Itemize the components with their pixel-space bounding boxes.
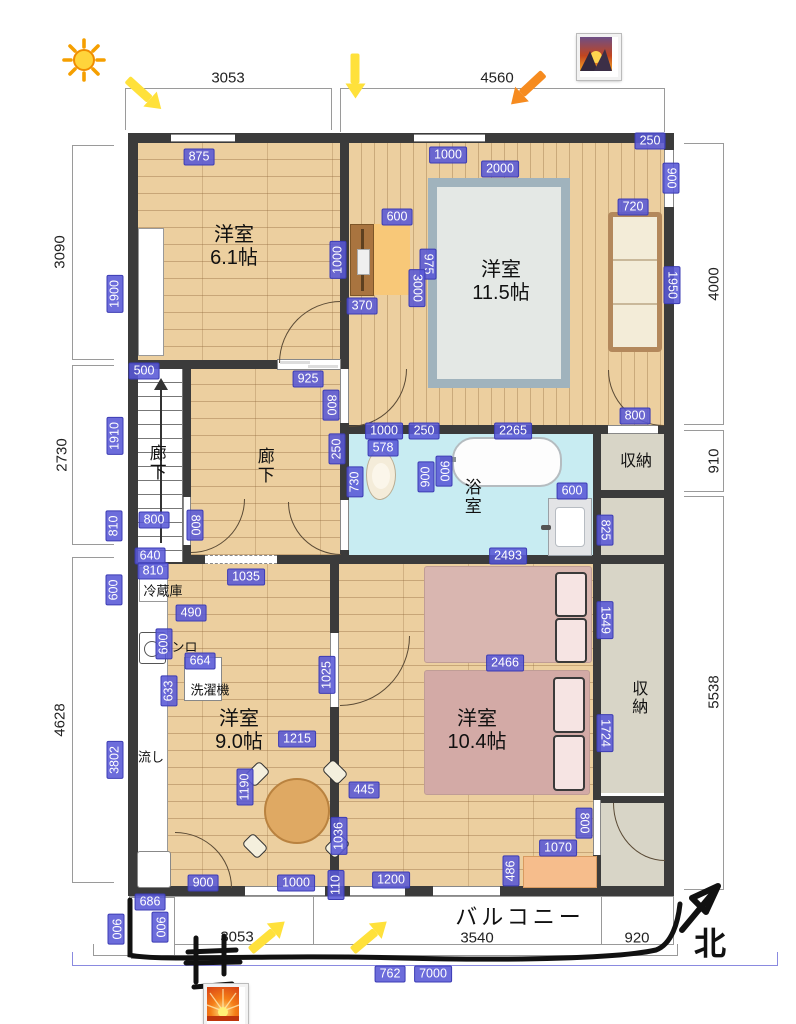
dimension-badge-1000: 1000 [365, 423, 403, 440]
dim-bracket-left-3090 [72, 145, 114, 360]
dimension-badge-1000: 1000 [330, 241, 347, 279]
dimension-badge-2493: 2493 [489, 548, 527, 565]
dimension-badge-720: 720 [618, 199, 649, 216]
door-gap-entry [593, 800, 601, 855]
dimension-badge-2466: 2466 [486, 655, 524, 672]
sofa [608, 212, 662, 352]
sunrise-photo-icon-bottom [204, 984, 248, 1024]
label-9: 洗濯機 [190, 684, 229, 699]
dimension-badge-1025: 1025 [319, 656, 336, 694]
dimension-badge-1910: 1910 [107, 417, 124, 455]
dimension-badge-445: 445 [349, 782, 380, 799]
dimension-badge-500: 500 [129, 363, 160, 380]
label-10: 流し [138, 751, 164, 766]
dining-table [264, 778, 330, 844]
dimension-badge-900: 900 [663, 163, 680, 194]
label-7: 冷蔵庫 [143, 585, 182, 600]
label-4: 浴室 [461, 478, 481, 516]
bathroom-vanity [548, 498, 592, 556]
label-1: 洋室 11.5帖 [472, 259, 529, 305]
dimension-badge-810: 810 [106, 511, 123, 542]
dimension-badge-250: 250 [409, 423, 440, 440]
dimension-badge-600: 600 [156, 629, 173, 660]
dimension-badge-800: 800 [187, 510, 204, 541]
dimension-badge-1035: 1035 [227, 569, 265, 586]
outer-dimension-910: 910 [706, 448, 723, 473]
dimension-badge-1215: 1215 [278, 731, 316, 748]
outer-dimension-5538: 5538 [706, 675, 723, 708]
wall-right [664, 133, 674, 896]
dimension-badge-1190: 1190 [237, 769, 254, 806]
label-5: 収納 [620, 453, 652, 471]
dimension-badge-2265: 2265 [494, 423, 532, 440]
dimension-badge-600: 600 [557, 483, 588, 500]
dimension-badge-900: 900 [436, 456, 453, 487]
bed-1 [424, 566, 592, 663]
dimension-badge-370: 370 [347, 298, 378, 315]
dim-bracket-top-4560 [340, 88, 665, 132]
dimension-badge-800: 800 [620, 408, 651, 425]
window-6-1-top [171, 134, 235, 142]
label-0: 洋室 6.1帖 [210, 224, 258, 270]
label-6: 収納 [628, 680, 646, 716]
dimension-badge-664: 664 [185, 653, 216, 670]
dimension-badge-1549: 1549 [597, 601, 614, 639]
dimension-badge-800: 800 [139, 512, 170, 529]
hand-drawn-marker-lines [100, 870, 700, 1010]
label-3: 廊下 [254, 447, 274, 485]
dimension-badge-2000: 2000 [481, 161, 519, 178]
dimension-badge-1000: 1000 [429, 147, 467, 164]
label-12: 洋室 10.4帖 [448, 708, 507, 754]
dimension-badge-875: 875 [184, 149, 215, 166]
dimension-badge-1900: 1900 [107, 275, 124, 313]
yellow-arrow-down [346, 54, 366, 99]
dim-bracket-left-4628 [72, 557, 114, 883]
desk-chair-mat [374, 224, 410, 295]
dimension-badge-250: 250 [635, 133, 666, 150]
window-11-5-top [414, 134, 485, 142]
dimension-badge-730: 730 [347, 467, 364, 498]
dimension-badge-925: 925 [293, 371, 324, 388]
dimension-badge-3000: 3000 [409, 269, 426, 307]
outer-dimension-4560: 4560 [480, 70, 513, 87]
dimension-badge-633: 633 [161, 676, 178, 707]
outer-dimension-3053: 3053 [211, 70, 244, 87]
outer-dimension-4000: 4000 [706, 267, 723, 300]
wall-entry-top [601, 796, 674, 803]
outer-dimension-2730: 2730 [54, 438, 71, 471]
sunrise-photo-icon-top [577, 34, 621, 80]
dimension-badge-825: 825 [597, 515, 614, 546]
dimension-badge-800: 800 [576, 808, 593, 839]
stairs-up-arrow [154, 378, 168, 390]
dimension-badge-1950: 1950 [664, 266, 681, 304]
dimension-badge-250: 250 [329, 434, 346, 465]
wall-storage-top-bottom [601, 490, 674, 498]
dimension-badge-600: 600 [106, 575, 123, 606]
closet-6-1 [138, 228, 164, 356]
outer-dimension-4628: 4628 [52, 703, 69, 736]
open-passage-corridor [205, 555, 277, 564]
label-11: 洋室 9.0帖 [215, 708, 263, 754]
dimension-badge-1070: 1070 [539, 840, 577, 857]
sun-icon [62, 38, 106, 82]
dimension-badge-800: 800 [323, 390, 340, 421]
desk [350, 224, 374, 296]
dimension-badge-600: 600 [382, 209, 413, 226]
dimension-badge-900: 900 [418, 462, 435, 493]
label-2: 廊下 [146, 444, 166, 482]
dimension-badge-3802: 3802 [107, 741, 124, 779]
dimension-badge-1036: 1036 [331, 817, 348, 855]
dimension-badge-578: 578 [368, 440, 399, 457]
kitchen-counter [138, 564, 168, 886]
outer-dimension-3090: 3090 [52, 235, 69, 268]
floor-plan-canvas: 8751000200025090072060019001000975300037… [0, 0, 796, 1024]
door-gap-bath [340, 500, 349, 550]
wall-left [128, 133, 138, 896]
door-gap-11-5 [340, 369, 349, 423]
window-800-storage [608, 425, 658, 434]
dimension-badge-1724: 1724 [597, 714, 614, 752]
dimension-badge-490: 490 [176, 605, 207, 622]
dimension-badge-810: 810 [138, 563, 169, 580]
